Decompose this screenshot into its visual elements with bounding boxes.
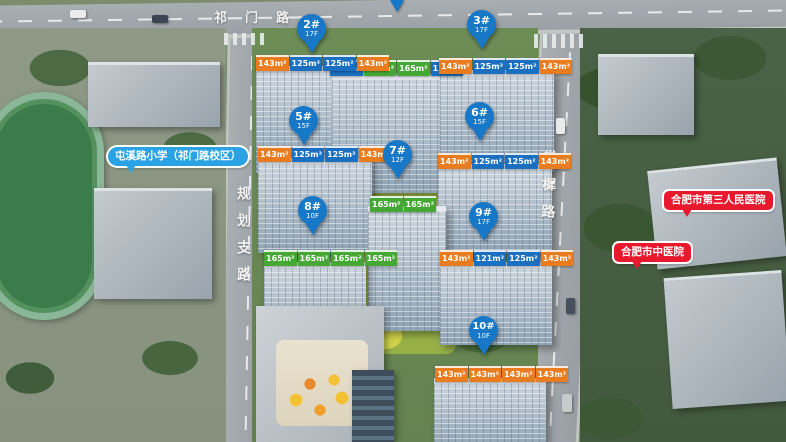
area-label: 125m²: [506, 58, 539, 74]
area-label: 125m²: [473, 58, 506, 74]
car: [70, 10, 86, 18]
pin-building-number: 7#: [389, 145, 406, 156]
landmark-hospital-third-bubble[interactable]: 合肥市第三人民医院: [664, 191, 773, 210]
area-label: 143m²: [541, 250, 574, 266]
pin-head: 6# 15F: [465, 102, 494, 131]
hospital-district-area: [580, 28, 786, 442]
area-label: 125m²: [323, 55, 356, 71]
pin-building-number: 5#: [295, 111, 312, 122]
pin-head: 2# 17F: [297, 14, 326, 43]
area-label: 125m²: [472, 153, 505, 169]
pin-building-number: 6#: [471, 107, 488, 118]
area-label: 165m²: [264, 250, 297, 266]
pin-building-6[interactable]: 6# 15F: [465, 102, 494, 141]
car: [152, 15, 168, 23]
pin-building-number: 8#: [304, 201, 321, 212]
pin-building-number: 9#: [475, 207, 492, 218]
area-label: 125m²: [507, 250, 540, 266]
crosswalk-left: [224, 33, 268, 45]
area-labels-building-6: 143m² 125m² 125m² 143m²: [438, 153, 571, 169]
area-labels-building-8: 165m² 165m² 165m² 165m²: [264, 250, 397, 266]
pin-building-10[interactable]: 10# 10F: [469, 316, 498, 355]
hospital-building: [598, 54, 694, 135]
pin-tail: [305, 222, 321, 235]
area-label: 143m²: [439, 58, 472, 74]
pin-tail: [304, 40, 320, 53]
school-building: [88, 62, 220, 127]
area-label: 143m²: [539, 153, 572, 169]
pin-tail: [476, 228, 492, 241]
area-label: 125m²: [292, 146, 325, 162]
area-labels-building-7: 165m² 165m²: [370, 196, 436, 212]
area-label: 125m²: [505, 153, 538, 169]
pin-building-3[interactable]: 3# 17F: [467, 10, 496, 49]
road-name-top: 祁门路: [214, 7, 307, 26]
area-label: 165m²: [365, 250, 398, 266]
pin-head: 10# 10F: [469, 316, 498, 345]
area-labels-building-3: 143m² 125m² 125m² 143m²: [439, 58, 572, 74]
area-label: 143m²: [502, 366, 535, 382]
area-label: 165m²: [404, 196, 437, 212]
pin-building-5[interactable]: 5# 15F: [289, 106, 318, 145]
pin-head: 3# 17F: [467, 10, 496, 39]
tower-building-10: [434, 378, 546, 442]
area-label: 165m²: [397, 60, 430, 76]
pin-building-number: 10#: [472, 322, 494, 332]
area-label: 165m²: [298, 250, 331, 266]
area-label: 143m²: [440, 250, 473, 266]
facility-building: [352, 370, 394, 442]
area-label: 143m²: [540, 58, 573, 74]
car: [566, 298, 575, 314]
pin-floor-count: 17F: [475, 27, 488, 34]
landmark-hospital-tcm-bubble[interactable]: 合肥市中医院: [614, 243, 691, 262]
area-label: 143m²: [536, 366, 569, 382]
area-label: 165m²: [331, 250, 364, 266]
pin-building-number: 3#: [473, 15, 490, 26]
area-label: 143m²: [258, 146, 291, 162]
pin-head: 5# 15F: [289, 106, 318, 135]
pin-building-2[interactable]: 2# 17F: [297, 14, 326, 53]
pin-building-9[interactable]: 9# 17F: [469, 202, 498, 241]
car: [562, 394, 572, 412]
area-label: 143m²: [256, 55, 289, 71]
pin-tail: [472, 128, 488, 141]
pin-floor-count: 15F: [473, 119, 486, 126]
car: [556, 118, 565, 134]
area-labels-building-9: 143m² 121m² 125m² 143m²: [440, 250, 573, 266]
pin-tail: [474, 36, 490, 49]
area-labels-building-5: 143m² 125m² 125m² 143m²: [258, 146, 391, 162]
pin-tail: [390, 166, 406, 179]
pin-floor-count: 10F: [477, 333, 490, 340]
pin-tail: [296, 132, 312, 145]
area-label: 125m²: [290, 55, 323, 71]
area-label: 125m²: [325, 146, 358, 162]
area-labels-building-2: 143m² 125m² 125m² 143m²: [256, 55, 389, 71]
area-label: 143m²: [469, 366, 502, 382]
road-name-left: 规划支路: [233, 186, 253, 294]
pin-building-number: 2#: [303, 19, 320, 30]
landmark-school-bubble[interactable]: 屯溪路小学（祁门路校区）: [108, 147, 248, 166]
pin-floor-count: 10F: [306, 213, 319, 220]
area-label: 143m²: [357, 55, 390, 71]
hospital-building: [664, 270, 786, 409]
masterplan-scene: 125m² 165m² 165m² 125m² 143m² 125m² 125m…: [0, 0, 786, 442]
school-building: [94, 188, 212, 299]
pin-floor-count: 12F: [391, 157, 404, 164]
area-label: 165m²: [370, 196, 403, 212]
pin-building-7[interactable]: 7# 12F: [383, 140, 412, 179]
pin-floor-count: 15F: [297, 123, 310, 130]
pin-tail: [476, 342, 492, 355]
pin-head: 9# 17F: [469, 202, 498, 231]
area-label: 121m²: [474, 250, 507, 266]
pin-head: 8# 10F: [298, 196, 327, 225]
area-label: 143m²: [438, 153, 471, 169]
pin-building-1-tip[interactable]: [390, 0, 404, 12]
pin-head: 7# 12F: [383, 140, 412, 169]
area-label: 143m²: [435, 366, 468, 382]
pin-building-8[interactable]: 8# 10F: [298, 196, 327, 235]
area-labels-building-10: 143m² 143m² 143m² 143m²: [435, 366, 568, 382]
pin-floor-count: 17F: [477, 219, 490, 226]
school-campus-area: [0, 28, 226, 442]
pin-floor-count: 17F: [305, 31, 318, 38]
crosswalk-right: [534, 34, 588, 48]
